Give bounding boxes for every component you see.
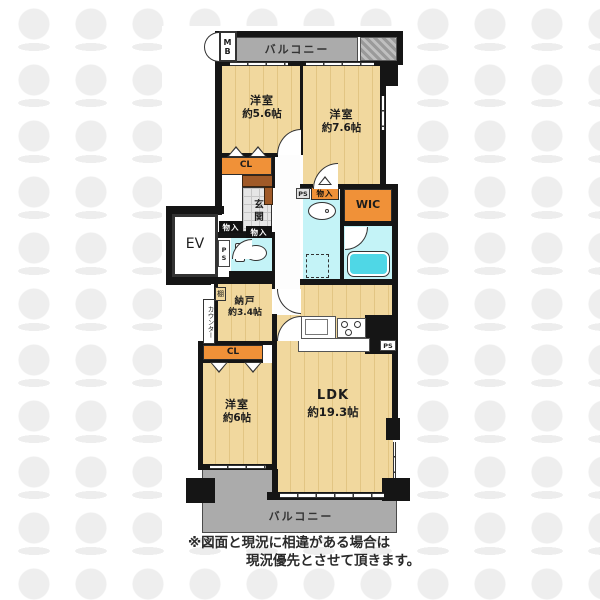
room-label-bedroom-3: 洋室 約6帖: [202, 398, 272, 426]
wall-segment: [215, 31, 401, 37]
wall-segment: [338, 184, 398, 189]
room-name: 納戸: [218, 296, 272, 308]
closet-wic-label: WIC: [344, 198, 392, 211]
room-area: 約3.4帖: [218, 308, 272, 320]
kitchen-counter: [298, 338, 370, 352]
disclaimer-line-1: ※図面と現況に相違がある場合は: [188, 534, 420, 552]
disclaimer-line-2: 現況優先とさせて頂きます。: [246, 552, 420, 570]
sink-icon: [308, 202, 336, 220]
window: [381, 96, 385, 130]
monoire-closet-label: 物入: [246, 226, 272, 238]
room-name: 洋室: [222, 94, 302, 108]
wall-segment: [272, 314, 277, 496]
wall-segment: [300, 279, 398, 285]
monoire-closet-label: 物入: [219, 221, 243, 233]
balcony-top-label: バルコニー: [252, 41, 342, 57]
room-area: 約5.6帖: [222, 108, 302, 122]
wall-segment: [344, 221, 398, 226]
room-name: 洋室: [202, 398, 272, 412]
balcony-top-hatched-section: [360, 37, 397, 61]
shoe-cabinet-top: [242, 175, 273, 187]
window: [280, 493, 384, 498]
room-name: LDK: [287, 388, 379, 405]
window: [306, 62, 374, 66]
counter-label-text: カウンター: [205, 301, 215, 343]
room-label-bedroom-2: 洋室 約7.6帖: [303, 108, 380, 136]
wall-segment: [397, 31, 403, 65]
genkan-label: 玄関: [250, 192, 264, 230]
wall-segment: [386, 418, 400, 440]
wall-segment: [166, 206, 224, 214]
stove-burner: [341, 321, 348, 328]
pillar: [382, 478, 410, 501]
bathtub-icon: [348, 252, 389, 276]
closet-cl-bottom-label: CL: [203, 347, 263, 357]
room-label-bedroom-1: 洋室 約5.6帖: [222, 94, 302, 122]
floorplan-canvas: バルコニー バルコニー 玄関 CL WIC CL: [0, 0, 600, 600]
mb-label: MB: [223, 34, 232, 60]
wall-segment: [392, 286, 398, 422]
wall-segment: [218, 153, 278, 157]
room-name: 洋室: [303, 108, 380, 122]
balcony-bottom-label: バルコニー: [256, 508, 346, 524]
shoe-cabinet-side: [264, 187, 273, 205]
disclaimer-note: ※図面と現況に相違がある場合は 現況優先とさせて頂きます。: [188, 534, 420, 570]
window: [210, 465, 266, 469]
closet-cl-top-label: CL: [220, 160, 272, 170]
room-area: 約7.6帖: [303, 122, 380, 136]
pipe-space-label: PS: [380, 340, 396, 351]
wall-segment: [340, 189, 344, 280]
pillar: [186, 478, 215, 503]
stove-burner: [345, 329, 352, 336]
sink-drain: [325, 209, 329, 213]
room-area: 約6帖: [202, 412, 272, 426]
wall-segment: [272, 155, 275, 188]
room-label-ldk: LDK 約19.3帖: [287, 388, 379, 420]
washer-space-icon: [306, 254, 329, 278]
ev-label: EV: [172, 236, 218, 252]
wall-segment: [392, 186, 398, 286]
stove-burner: [354, 321, 361, 328]
window: [393, 442, 396, 478]
wall-segment: [200, 277, 273, 284]
pipe-space-label: PS: [296, 188, 310, 199]
room-label-nando: 納戸 約3.4帖: [218, 296, 272, 320]
wall-segment: [272, 232, 275, 289]
kitchen-sink-basin: [305, 319, 328, 335]
window: [230, 62, 288, 66]
pipe-space-label: PS: [218, 240, 230, 267]
room-area: 約19.3帖: [287, 405, 379, 420]
